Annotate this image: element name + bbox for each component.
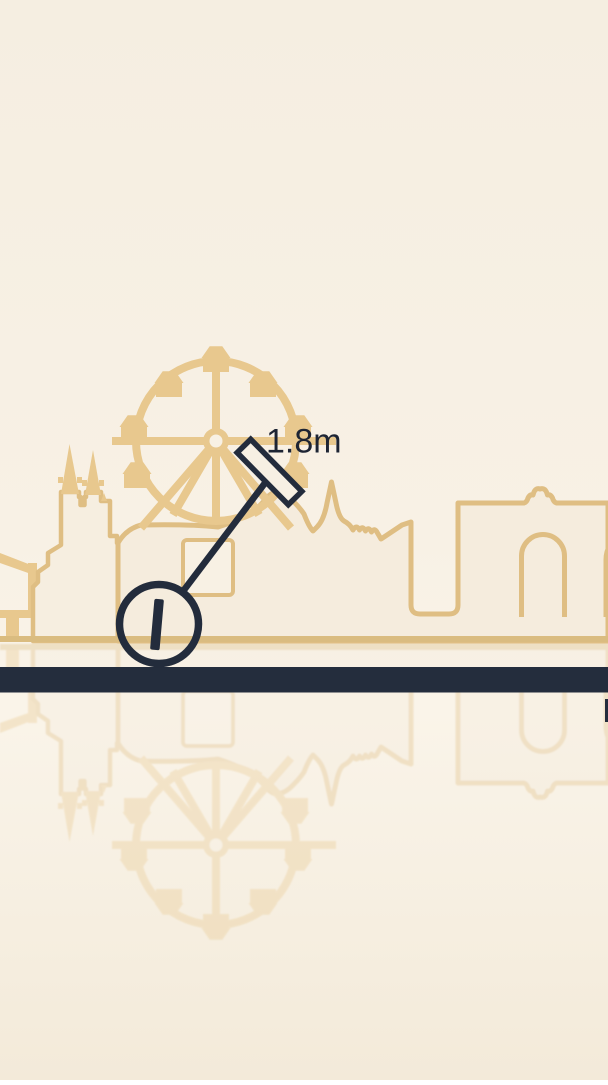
svg-text:1.8m: 1.8m [266, 423, 342, 461]
